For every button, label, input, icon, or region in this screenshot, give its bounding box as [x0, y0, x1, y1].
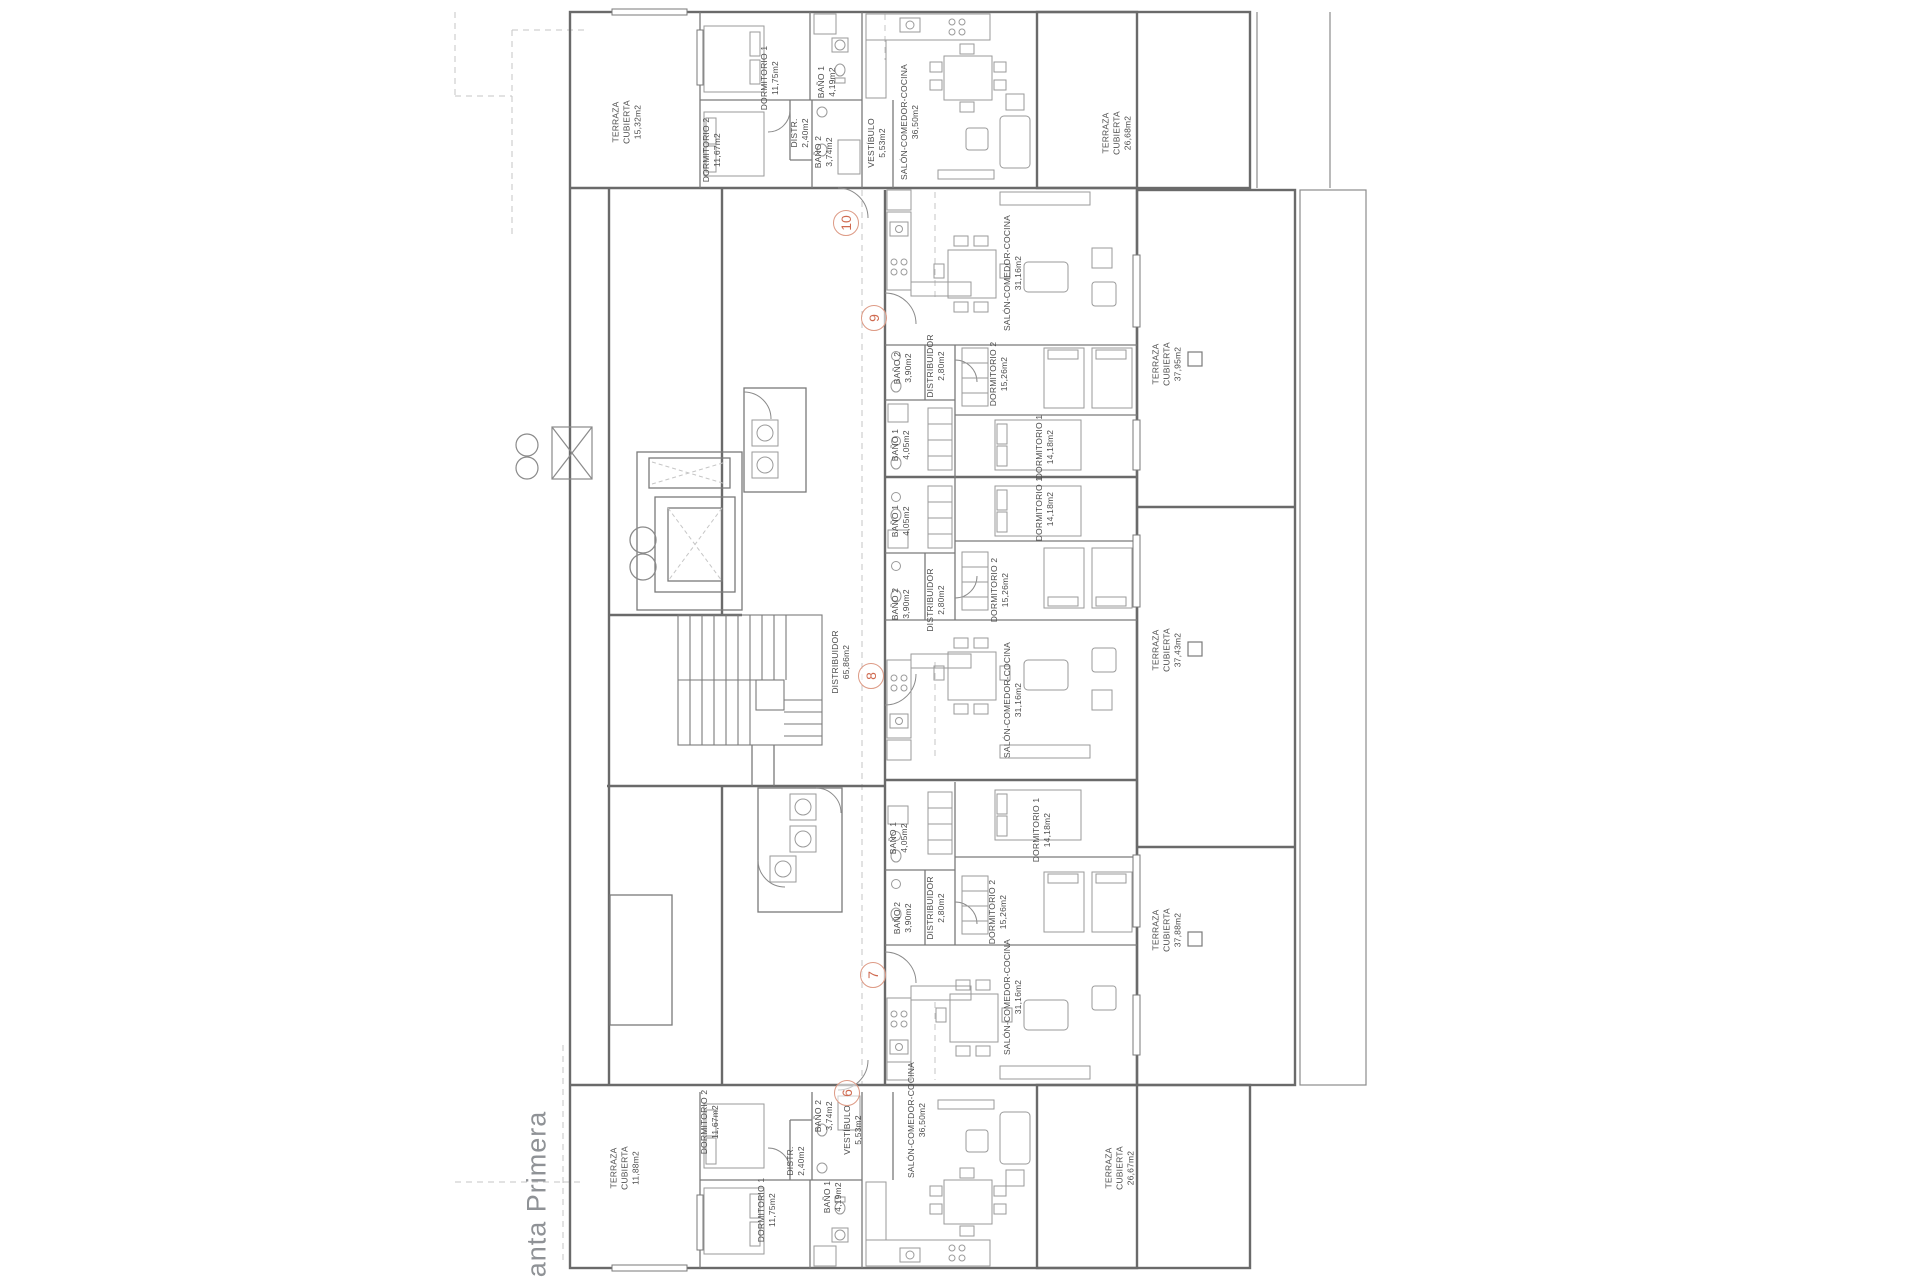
staircase [678, 615, 822, 745]
bedrooms-8 [928, 486, 1132, 610]
room-label-vestibulo-6: VESTÍBULO5,53m2 [842, 1105, 864, 1155]
unit-number-6: 6 [834, 1080, 860, 1106]
room-label-distribuidor-8: DISTRIBUIDOR2,80m2 [925, 568, 947, 631]
outer-roof-strip [1257, 12, 1366, 1085]
room-label-bano1-9: BAÑO 14,05m2 [890, 429, 912, 461]
bedrooms-9 [928, 348, 1132, 470]
door-arcs [744, 110, 977, 1170]
room-label-salon-6: SALÓN-COMEDOR-COCINA36,50m2 [906, 1062, 928, 1178]
dining-living-10 [930, 44, 1030, 179]
windows [612, 9, 1140, 1271]
room-label-salon-9: SALÓN-COMEDOR-COCINA31,16m2 [1002, 215, 1024, 331]
room-label-dormitorio1-9: DORMITORIO 114,18m2 [1034, 415, 1056, 480]
floor-plan-drawing [0, 0, 1920, 1280]
room-label-distribuidor-9: DISTRIBUIDOR2,80m2 [925, 334, 947, 397]
room-label-distr-10: DISTR.2,40m2 [789, 118, 811, 148]
room-label-dormitorio2-6: DORMITORIO 211,67m2 [699, 1090, 721, 1155]
room-label-bano1-10: BAÑO 14,19m2 [816, 66, 838, 98]
room-label-terraza-6-right: TERRAZACUBIERTA26,67m2 [1103, 1146, 1136, 1190]
room-label-distribuidor-7: DISTRIBUIDOR2,80m2 [925, 876, 947, 939]
unit-number-8: 8 [858, 663, 884, 689]
room-label-bano2-8: BAÑO 23,90m2 [890, 588, 912, 620]
room-label-dormitorio2-9: DORMITORIO 215,26m2 [988, 342, 1010, 407]
service-shaft [516, 427, 592, 479]
dining-living-7 [936, 980, 1116, 1079]
unit-number-9: 9 [861, 305, 887, 331]
kitchen-7 [887, 986, 971, 1080]
room-label-dormitorio2-10: DORMITORIO 211,67m2 [701, 118, 723, 183]
plan-title: Planta Primera [522, 1111, 553, 1280]
room-label-terraza-band-2: TERRAZACUBIERTA37,43m2 [1150, 628, 1183, 672]
room-label-terraza-10-right: TERRAZACUBIERTA26,68m2 [1100, 111, 1133, 155]
room-label-salon-7: SALÓN-COMEDOR-COCINA31,16m2 [1002, 939, 1024, 1055]
room-label-bano2-7: BAÑO 23,90m2 [892, 902, 914, 934]
room-label-bano1-8: BAÑO 14,05m2 [890, 505, 912, 537]
dining-living-9 [934, 192, 1116, 312]
elevator [630, 452, 742, 610]
room-label-bano2-9: BAÑO 23,90m2 [892, 352, 914, 384]
room-label-dormitorio2-8: DORMITORIO 215,26m2 [989, 558, 1011, 623]
room-label-terraza-10-left: TERRAZACUBIERTA15,32m2 [610, 100, 643, 144]
dining-living-6 [930, 1100, 1030, 1236]
unit-number-7: 7 [860, 962, 886, 988]
room-label-terraza-band-1: TERRAZACUBIERTA37,95m2 [1150, 342, 1183, 386]
room-label-salon-8: SALÓN-COMEDOR-COCINA31,16m2 [1002, 642, 1024, 758]
room-label-bano1-6: BAÑO 14,19m2 [822, 1181, 844, 1213]
structural-walls [570, 12, 1295, 1268]
unit-number-10: 10 [833, 210, 859, 236]
room-label-dormitorio1-7: DORMITORIO 114,18m2 [1031, 798, 1053, 863]
room-label-salon-10: SALÓN-COMEDOR-COCINA36,50m2 [899, 64, 921, 180]
kitchen-9 [887, 190, 971, 296]
room-label-terraza-band-3: TERRAZACUBIERTA37,88m2 [1150, 908, 1183, 952]
room-label-bano2-10: BAÑO 23,74m2 [813, 136, 835, 168]
room-label-vestibulo-10: VESTÍBULO5,53m2 [866, 118, 888, 168]
room-label-dormitorio1-8: DORMITORIO 114,18m2 [1034, 477, 1056, 542]
room-label-distribuidor-comun: DISTRIBUIDOR65,86m2 [830, 630, 852, 693]
floor-plan-page: Planta Primera TERRAZACUBIERTA15,32m2DOR… [0, 0, 1920, 1280]
room-label-terraza-6-left: TERRAZACUBIERTA11,88m2 [608, 1146, 641, 1190]
room-label-bano1-7: BAÑO 14,05m2 [888, 822, 910, 854]
room-label-bano2-6: BAÑO 23,74m2 [813, 1100, 835, 1132]
room-label-dormitorio2-7: DORMITORIO 215,26m2 [987, 880, 1009, 945]
room-label-distr-6: DISTR.2,40m2 [785, 1146, 807, 1176]
kitchen-9-mirror [887, 654, 971, 760]
terrace-columns [1188, 352, 1202, 946]
room-label-dormitorio1-10: DORMITORIO 111,75m2 [759, 46, 781, 111]
dining-living-8 [934, 638, 1116, 758]
partition-walls [610, 12, 1137, 1268]
room-label-dormitorio1-6: DORMITORIO 111,75m2 [756, 1178, 778, 1243]
